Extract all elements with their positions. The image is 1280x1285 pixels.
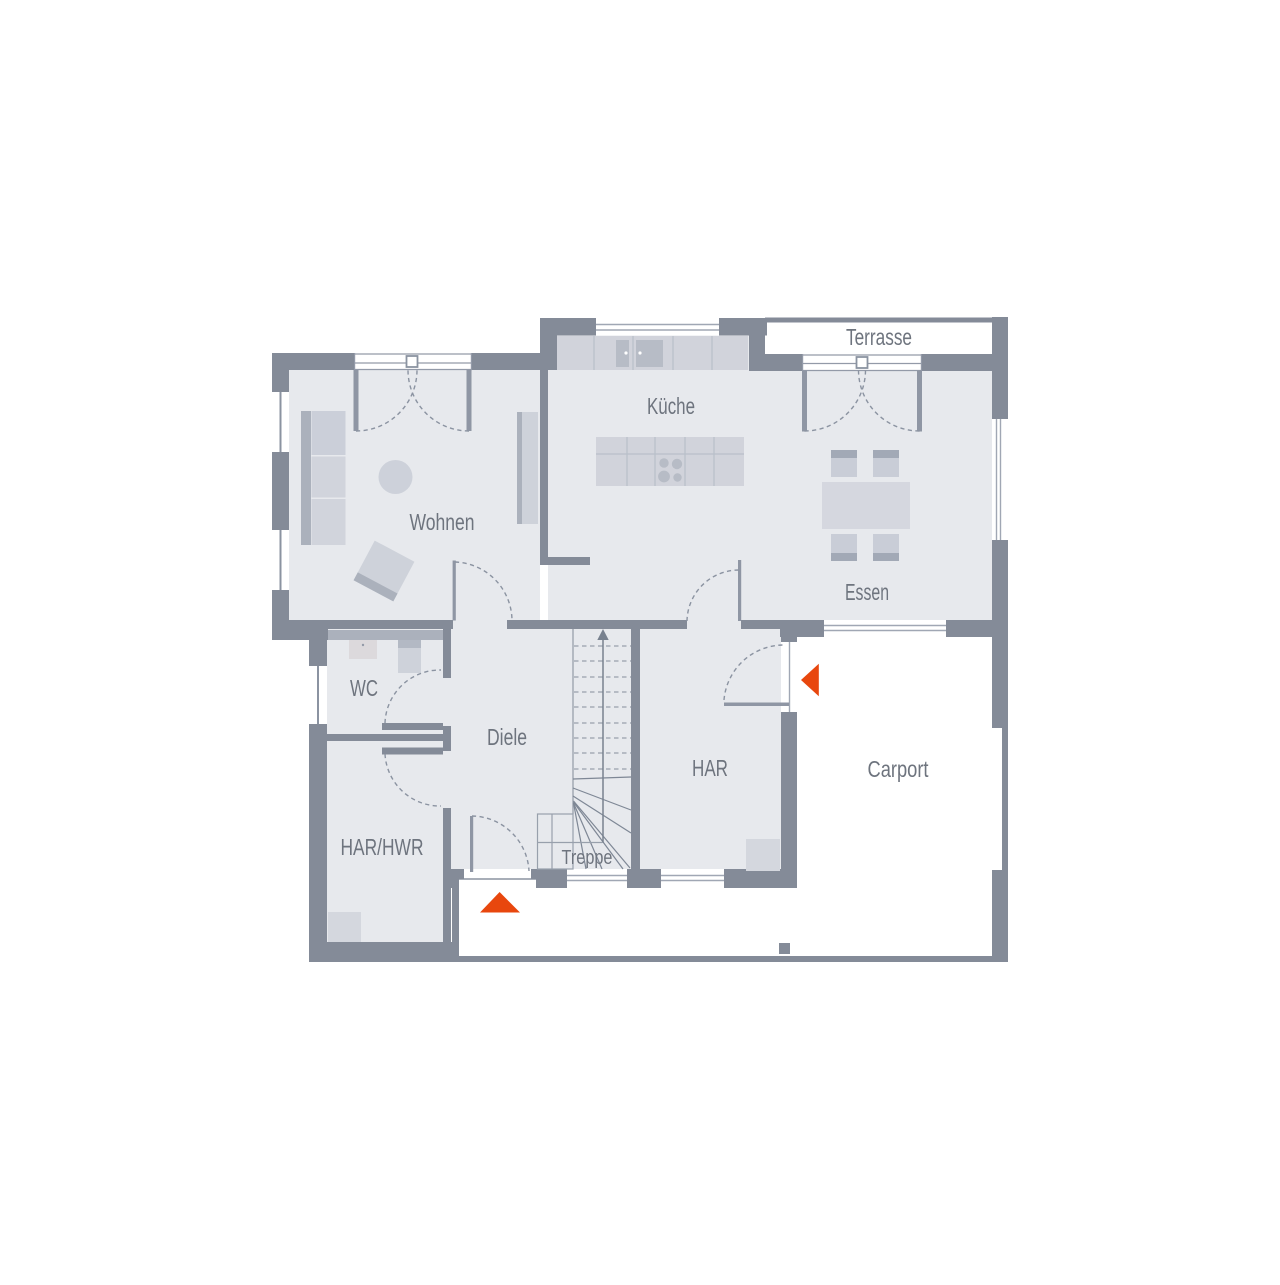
- svg-text:HAR: HAR: [692, 755, 728, 781]
- svg-text:Carport: Carport: [868, 756, 929, 782]
- svg-text:Küche: Küche: [647, 393, 695, 419]
- svg-text:WC: WC: [350, 675, 378, 701]
- svg-text:Essen: Essen: [845, 579, 889, 605]
- svg-text:Terrasse: Terrasse: [846, 324, 912, 350]
- svg-text:Diele: Diele: [487, 724, 527, 750]
- svg-text:Treppe: Treppe: [562, 846, 613, 869]
- svg-text:Wohnen: Wohnen: [410, 509, 475, 535]
- svg-text:HAR/HWR: HAR/HWR: [341, 834, 424, 860]
